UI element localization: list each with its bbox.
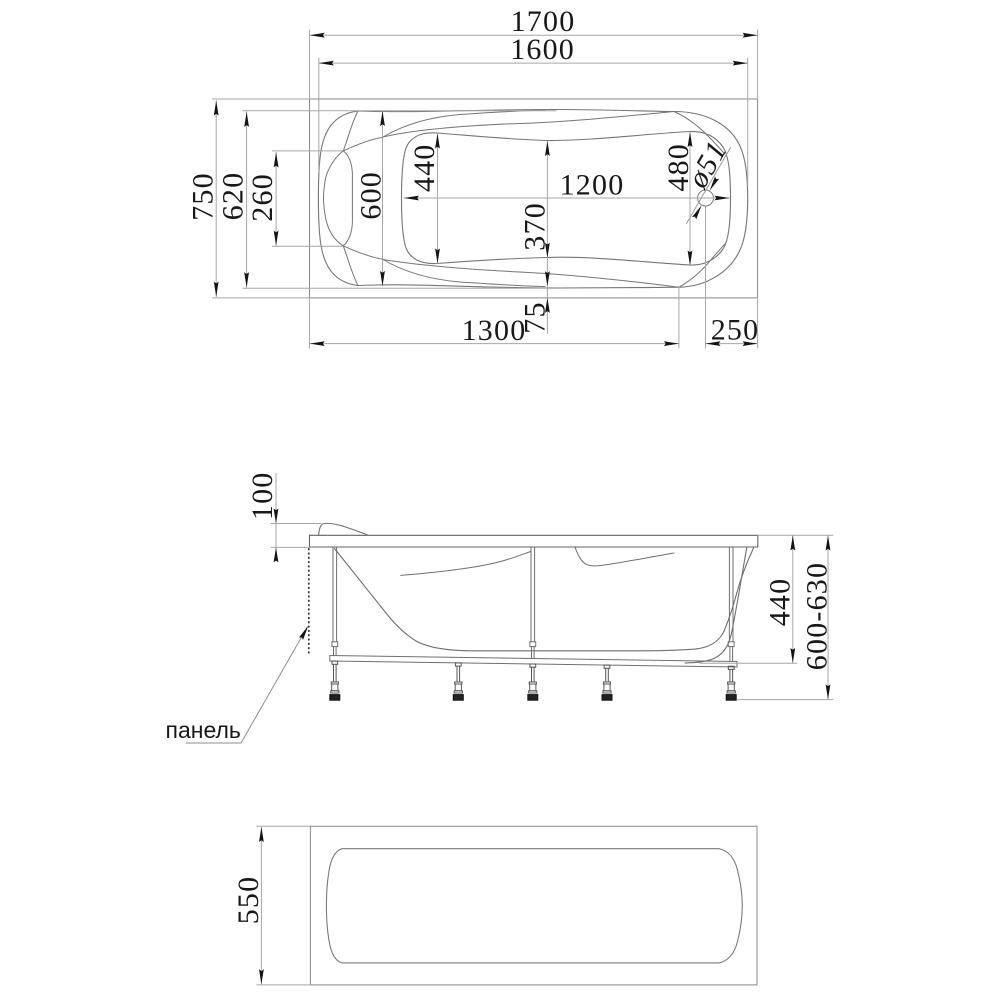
svg-text:440: 440 [408, 143, 441, 192]
svg-text:1600: 1600 [510, 33, 575, 66]
svg-text:600-630: 600-630 [800, 562, 833, 670]
svg-text:260: 260 [246, 173, 279, 222]
svg-text:440: 440 [764, 578, 797, 627]
svg-text:100: 100 [246, 471, 279, 520]
svg-text:620: 620 [217, 172, 250, 221]
svg-text:1200: 1200 [560, 168, 625, 201]
svg-text:600: 600 [355, 171, 388, 220]
svg-text:370: 370 [519, 202, 552, 251]
svg-text:750: 750 [186, 172, 219, 221]
svg-text:1300: 1300 [462, 314, 527, 347]
svg-text:550: 550 [232, 876, 265, 925]
svg-text:панель: панель [166, 717, 241, 743]
svg-text:75: 75 [519, 301, 552, 333]
svg-text:250: 250 [711, 314, 760, 347]
